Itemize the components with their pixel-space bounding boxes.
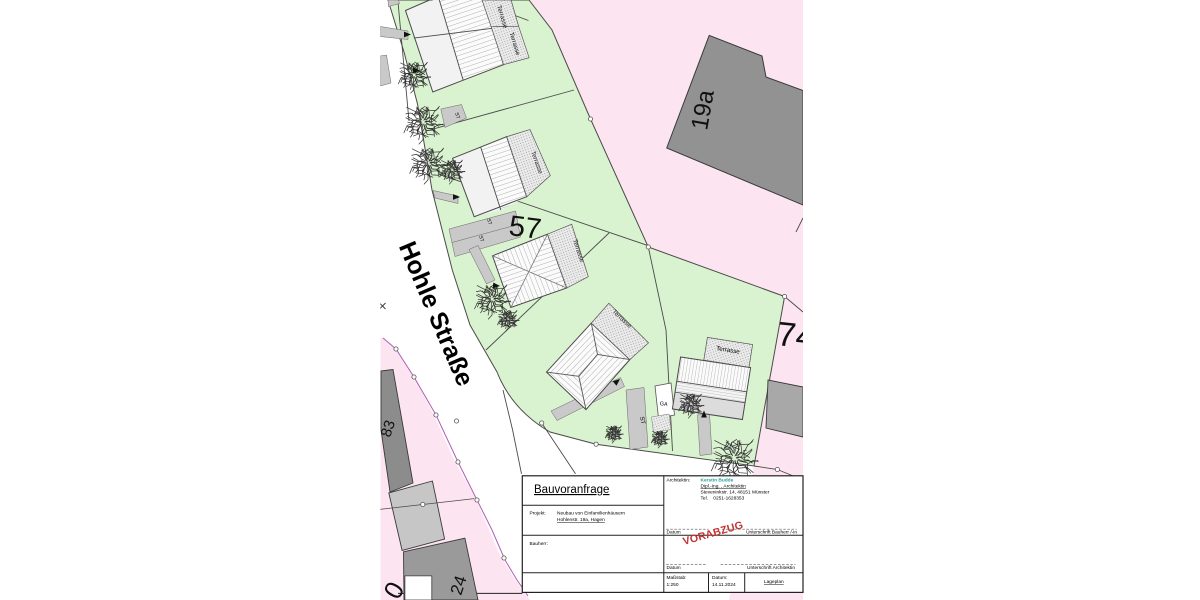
svg-text:1:250: 1:250 bbox=[667, 582, 679, 588]
svg-text:Projekt:: Projekt: bbox=[530, 511, 546, 517]
svg-text:14.11.2024: 14.11.2024 bbox=[712, 582, 736, 588]
svg-text:Architektin:: Architektin: bbox=[667, 478, 691, 484]
svg-text:Datum:: Datum: bbox=[712, 575, 727, 581]
svg-text:Unterschrift Architektin: Unterschrift Architektin bbox=[747, 565, 795, 571]
svg-text:Datum: Datum bbox=[667, 565, 681, 571]
svg-text:Neubau von Einfamilienhäusern: Neubau von Einfamilienhäusern bbox=[557, 511, 625, 517]
svg-text:Datum: Datum bbox=[667, 530, 681, 536]
svg-text:Tel. 0251-1628353: Tel. 0251-1628353 bbox=[701, 496, 745, 502]
svg-text:Maßstab:: Maßstab: bbox=[667, 575, 687, 581]
svg-text:GA: GA bbox=[659, 401, 668, 408]
svg-text:Dipl.-Ing. , Architektin: Dipl.-Ing. , Architektin bbox=[701, 484, 747, 490]
svg-text:Steveninkstr. 14, 48151 Münste: Steveninkstr. 14, 48151 Münster bbox=[701, 490, 770, 496]
svg-text:Unterschrift Bauherr /-in: Unterschrift Bauherr /-in bbox=[746, 530, 797, 536]
svg-text:Hohlenstr. 19a, Hagen: Hohlenstr. 19a, Hagen bbox=[557, 517, 605, 523]
svg-text:Bauvoranfrage: Bauvoranfrage bbox=[534, 484, 609, 496]
svg-text:Bauherr:: Bauherr: bbox=[530, 541, 548, 547]
svg-text:Kerstin Budde: Kerstin Budde bbox=[701, 478, 734, 484]
svg-text:57: 57 bbox=[507, 210, 543, 246]
svg-text:Lageplan: Lageplan bbox=[764, 579, 784, 585]
